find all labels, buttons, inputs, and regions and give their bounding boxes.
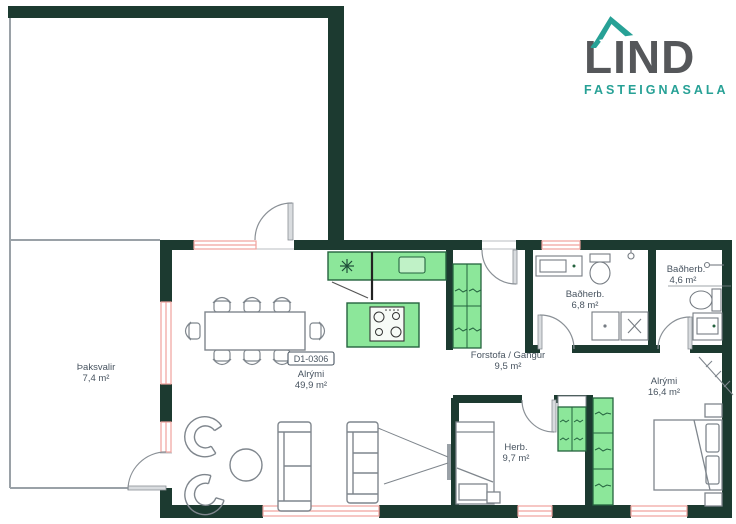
- double-bed: [654, 420, 722, 490]
- dining-table: [205, 312, 305, 350]
- balcony-door-north: [255, 203, 293, 240]
- armchair: [181, 413, 223, 459]
- label-alrymi-main-area: 49,9 m²: [295, 380, 327, 391]
- label-thaksvalir-area: 7,4 m²: [83, 373, 110, 384]
- shower-head-icon: [628, 250, 634, 259]
- tv-icon: [447, 444, 451, 480]
- nightstand: [705, 493, 722, 506]
- toilet-icon: [590, 254, 610, 284]
- label-herb-name: Herb.: [504, 442, 527, 453]
- unit-code-label: D1-0306: [294, 354, 329, 364]
- lind-logo: LIND FASTEIGNASALA: [584, 8, 734, 97]
- window-south-bedroom: [631, 506, 687, 516]
- window-west-upper: [161, 302, 171, 384]
- label-herb-area: 9,7 m²: [503, 453, 530, 464]
- label-alrymi-16-area: 16,4 m²: [648, 387, 680, 398]
- label-thaksvalir-name: Þaksvalir: [77, 362, 116, 373]
- freezer-icon: [340, 259, 354, 273]
- window-south-herb: [518, 506, 552, 516]
- forstofa-closet: [453, 264, 481, 348]
- label-alrymi-16-name: Alrými: [651, 376, 677, 387]
- label-forstofa-area: 9,5 m²: [495, 361, 522, 372]
- window-north-bath: [542, 241, 580, 249]
- label-badherb-4-6-area: 4,6 m²: [670, 275, 697, 286]
- balcony-railing: [10, 16, 160, 488]
- label-forstofa-name: Forstofa / Gangur: [471, 350, 545, 361]
- bedroom-wardrobe-column: [593, 398, 613, 505]
- balcony-door-west: [128, 452, 166, 490]
- vanity-sink-icon: [693, 313, 722, 340]
- nightstand: [705, 404, 722, 417]
- entrance-door: [482, 250, 517, 284]
- vanity-sink-icon: [536, 256, 582, 276]
- washer-icon: [592, 312, 619, 340]
- coffee-table: [230, 449, 262, 481]
- label-badherb-6-8-area: 6,8 m²: [572, 300, 599, 311]
- herb-furniture: [456, 422, 500, 504]
- toilet-icon: [690, 289, 721, 311]
- sink-icon: [399, 257, 425, 273]
- logo-subtitle-text: FASTEIGNASALA: [584, 83, 734, 97]
- herb-wardrobe: [558, 396, 586, 451]
- room-labels: Þaksvalir 7,4 m² D1-0306 Alrými 49,9 m² …: [77, 264, 731, 464]
- bath-4-6-door: [658, 317, 692, 349]
- window-west-lower: [161, 422, 171, 452]
- sofa: [347, 422, 378, 503]
- towel-hook-icon: [705, 263, 725, 268]
- dryer-icon: [621, 312, 648, 340]
- kitchen: [328, 252, 446, 347]
- label-badherb-6-8-name: Baðherb.: [566, 289, 605, 300]
- label-badherb-4-6-name: Baðherb.: [667, 264, 706, 275]
- floor-plan-page: Þaksvalir 7,4 m² D1-0306 Alrými 49,9 m² …: [0, 0, 736, 524]
- label-alrymi-main-name: Alrými: [298, 369, 324, 380]
- herb-door: [522, 400, 556, 432]
- stove-icon: [370, 307, 404, 341]
- window-north-living: [194, 241, 256, 249]
- tv-sightlines: [378, 428, 448, 484]
- sofa: [278, 422, 311, 511]
- bath-6-8-door: [538, 315, 574, 349]
- single-bed: [456, 422, 500, 504]
- logo-house-roof-icon: [586, 8, 650, 48]
